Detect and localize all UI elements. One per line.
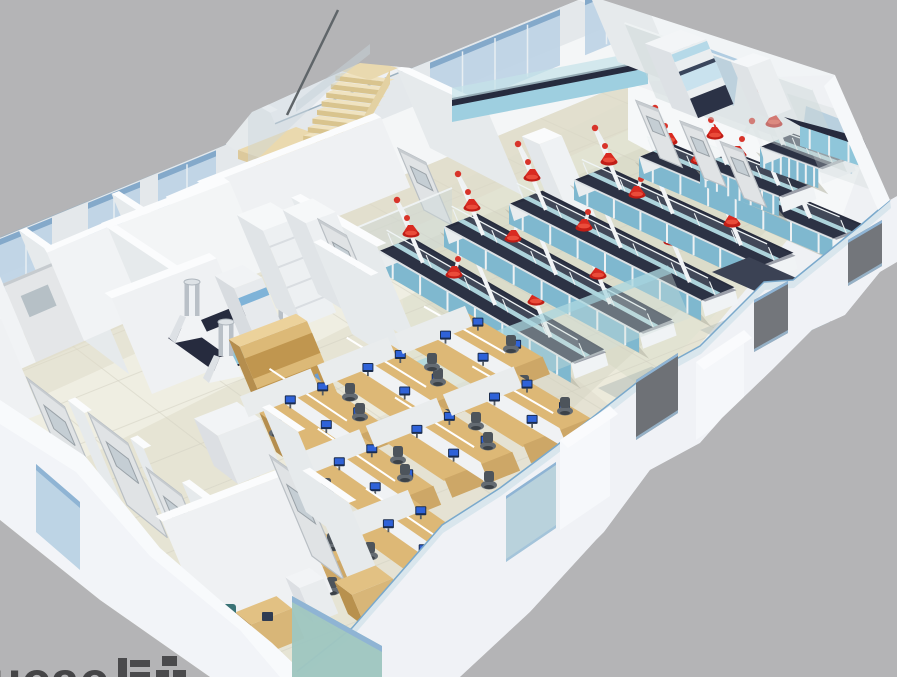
svg-text:ucac: ucac	[0, 652, 109, 677]
